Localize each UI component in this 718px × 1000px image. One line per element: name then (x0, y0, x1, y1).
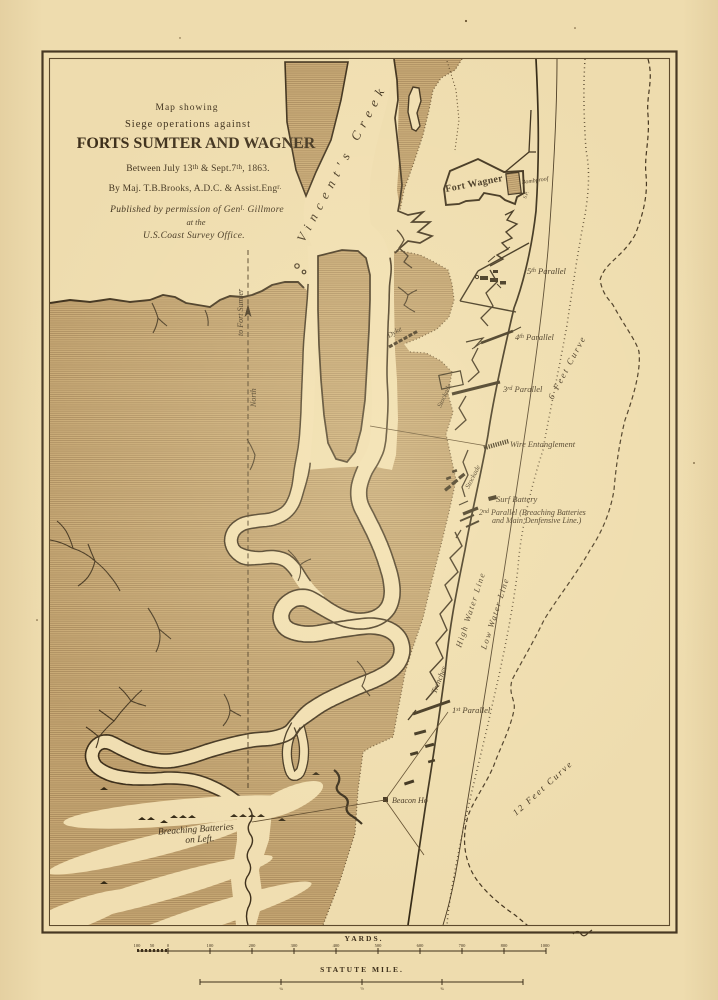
svg-text:6 Feet Curve: 6 Feet Curve (546, 334, 588, 401)
svg-text:1000: 1000 (541, 943, 551, 948)
svg-text:By Maj. T.B.Brooks, A.D.C. & A: By Maj. T.B.Brooks, A.D.C. & Assist.Engr… (109, 183, 282, 194)
svg-text:Published by permission of Gen: Published by permission of Genl. Gillmor… (109, 204, 284, 215)
svg-text:800: 800 (501, 943, 509, 948)
svg-text:Map showing: Map showing (156, 103, 219, 113)
svg-text:Surf Battery: Surf Battery (496, 494, 538, 504)
svg-text:1st Parallel: 1st Parallel (452, 705, 491, 715)
svg-text:Wire Entanglement: Wire Entanglement (510, 439, 576, 449)
svg-text:50: 50 (150, 943, 155, 948)
svg-text:300: 300 (291, 943, 299, 948)
svg-text:4th Parallel: 4th Parallel (515, 332, 555, 342)
svg-text:Siege operations against: Siege operations against (125, 119, 251, 130)
svg-text:and Main Denfensive Line.): and Main Denfensive Line.) (492, 516, 582, 525)
svg-text:600: 600 (417, 943, 425, 948)
svg-text:STATUTE MILE.: STATUTE MILE. (320, 965, 404, 974)
svg-text:700: 700 (459, 943, 467, 948)
svg-text:YARDS.: YARDS. (344, 934, 383, 943)
svg-text:¼: ¼ (279, 986, 283, 991)
svg-text:½: ½ (360, 986, 364, 991)
svg-text:3rd Parallel: 3rd Parallel (502, 384, 543, 394)
svg-text:0: 0 (167, 943, 170, 948)
svg-text:at the: at the (186, 217, 205, 227)
svg-text:FORTS SUMTER AND WAGNER: FORTS SUMTER AND WAGNER (77, 135, 316, 152)
svg-text:5th Parallel: 5th Parallel (527, 266, 567, 276)
svg-text:Bombproof: Bombproof (521, 175, 550, 186)
svg-text:200: 200 (249, 943, 257, 948)
svg-text:Between July 13th & Sept.7th,: Between July 13th & Sept.7th, 1863. (126, 163, 270, 174)
svg-text:S.P.: S.P. (523, 191, 530, 200)
svg-text:100: 100 (134, 943, 142, 948)
svg-text:on Left.: on Left. (185, 833, 215, 846)
svg-text:Fort Wagner: Fort Wagner (444, 173, 504, 195)
svg-text:500: 500 (375, 943, 383, 948)
svg-text:U.S.Coast Survey Office.: U.S.Coast Survey Office. (143, 230, 245, 241)
svg-text:400: 400 (333, 943, 341, 948)
svg-text:12 Feet Curve: 12 Feet Curve (511, 758, 575, 817)
svg-text:to Fort Sumter: to Fort Sumter (236, 288, 245, 336)
svg-text:North: North (249, 388, 258, 408)
svg-text:Beacon Ho: Beacon Ho (392, 796, 428, 805)
svg-text:100: 100 (207, 943, 215, 948)
svg-text:Low Water Line: Low Water Line (478, 576, 511, 651)
svg-text:¾: ¾ (440, 986, 444, 991)
